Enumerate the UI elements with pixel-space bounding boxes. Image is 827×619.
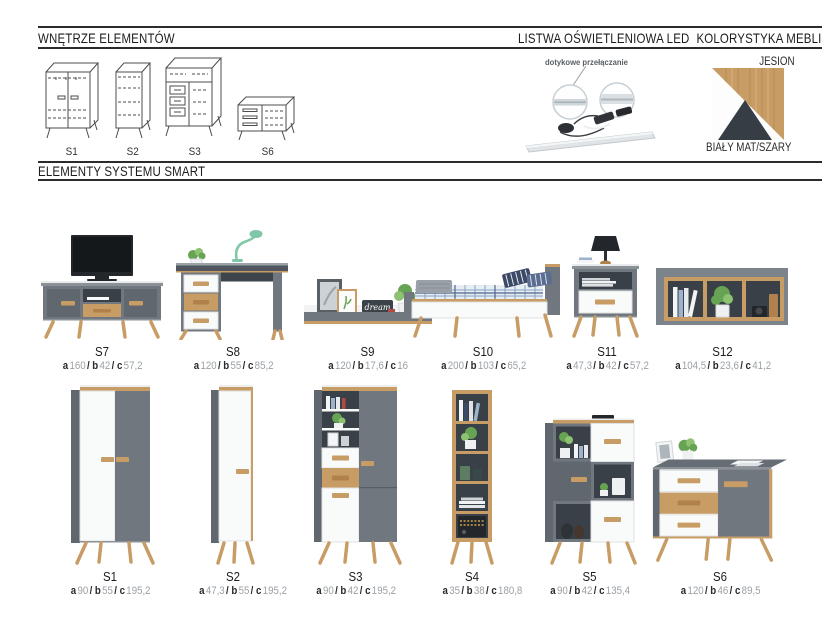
product-dimensions: a47,3/b42/c57,2 bbox=[563, 360, 651, 372]
s12-photo bbox=[650, 225, 795, 340]
section-title-interiors: WNĘTRZE ELEMENTÓW bbox=[38, 30, 175, 46]
s1-wireframe-icon bbox=[42, 58, 102, 142]
interior-label: S1 bbox=[66, 146, 78, 158]
s6-wireframe-icon bbox=[234, 93, 302, 142]
product-card-s2: S2 a47,3/b55/c195,2 bbox=[193, 388, 273, 597]
interior-drawing-s2: S2 bbox=[112, 58, 154, 160]
color-swatch bbox=[712, 68, 784, 140]
interior-drawing-s3: S3 bbox=[162, 52, 228, 160]
s2-photo bbox=[193, 388, 273, 565]
interior-drawing-s1: S1 bbox=[42, 58, 102, 160]
product-name: S5 bbox=[539, 569, 640, 584]
product-dimensions: a90/b42/c195,2 bbox=[305, 585, 406, 597]
product-name: S4 bbox=[441, 569, 503, 584]
s7-photo bbox=[37, 225, 167, 340]
product-dimensions: a200/b103/c65,2 bbox=[408, 360, 558, 372]
s1-photo bbox=[55, 388, 165, 565]
system-rule-bottom bbox=[38, 179, 822, 181]
product-dimensions: a120/b55/c85,2 bbox=[180, 360, 286, 372]
s6-photo bbox=[645, 388, 795, 565]
s3-wireframe-icon bbox=[162, 52, 228, 142]
led-strip-photo bbox=[520, 66, 672, 160]
product-card-s5: S5 a90/b42/c135,4 bbox=[532, 388, 647, 597]
s4-photo bbox=[437, 388, 507, 565]
color-label-jesion: JESION bbox=[760, 56, 795, 68]
product-card-s3: S3 a90/b42/c195,2 bbox=[298, 388, 413, 597]
interior-label: S6 bbox=[262, 146, 274, 158]
s5-cabinet-illustration bbox=[534, 415, 646, 565]
product-name: S10 bbox=[408, 344, 558, 359]
product-card-s1: S1 a90/b55/c195,2 bbox=[55, 388, 165, 597]
interior-label: S3 bbox=[189, 146, 201, 158]
s7-tv-stand-illustration bbox=[37, 235, 167, 340]
product-name: S11 bbox=[563, 344, 651, 359]
s6-sideboard-illustration bbox=[645, 431, 795, 565]
s10-bed-illustration bbox=[399, 252, 567, 340]
product-name: S6 bbox=[654, 569, 786, 584]
product-dimensions: a90/b42/c135,4 bbox=[539, 585, 640, 597]
s4-bookshelf-illustration bbox=[445, 388, 499, 565]
section-title-colors: KOLORYSTYKA MEBLI bbox=[697, 30, 822, 46]
interior-label: S2 bbox=[127, 146, 139, 158]
s1-wardrobe-illustration bbox=[56, 384, 164, 565]
s2-wireframe-icon bbox=[112, 58, 154, 142]
product-dimensions: a160/b42/c57,2 bbox=[45, 360, 159, 372]
section-title-led: LISTWA OŚWIETLENIOWA LED bbox=[518, 30, 689, 46]
product-name: S2 bbox=[198, 569, 268, 584]
product-name: S3 bbox=[305, 569, 406, 584]
dream-sign-text: dream bbox=[364, 303, 390, 312]
catalog-page: WNĘTRZE ELEMENTÓW LISTWA OŚWIETLENIOWA L… bbox=[0, 0, 827, 619]
product-name: S8 bbox=[180, 344, 286, 359]
s10-photo bbox=[398, 225, 568, 340]
header-rule bbox=[38, 47, 822, 49]
product-name: S7 bbox=[45, 344, 159, 359]
color-label-bialy-szary: BIAŁY MAT/SZARY bbox=[706, 142, 791, 154]
product-dimensions: a120/b46/c89,5 bbox=[654, 585, 786, 597]
product-dimensions: a35/b38/c180,8 bbox=[441, 585, 503, 597]
s3-bookcase-illustration bbox=[301, 384, 411, 565]
product-card-s10: S10 a200/b103/c65,2 bbox=[398, 225, 568, 372]
s11-photo bbox=[557, 225, 657, 340]
product-dimensions: a47,3/b55/c195,2 bbox=[198, 585, 268, 597]
product-card-s6: S6 a120/b46/c89,5 bbox=[645, 388, 795, 597]
product-dimensions: a90/b55/c195,2 bbox=[62, 585, 159, 597]
product-card-s7: S7 a160/b42/c57,2 bbox=[37, 225, 167, 372]
s2-wardrobe-illustration bbox=[195, 384, 271, 565]
section-title-system: ELEMENTY SYSTEMU SMART bbox=[38, 163, 205, 179]
s8-photo bbox=[173, 225, 293, 340]
s3-photo bbox=[298, 388, 413, 565]
product-card-s11: S11 a47,3/b42/c57,2 bbox=[557, 225, 657, 372]
product-card-s8: S8 a120/b55/c85,2 bbox=[173, 225, 293, 372]
s8-desk-illustration bbox=[173, 227, 293, 340]
product-card-s12: S12 a104,5/b23,6/c41,2 bbox=[650, 225, 795, 372]
product-dimensions: a104,5/b23,6/c41,2 bbox=[659, 360, 787, 372]
product-name: S1 bbox=[62, 569, 159, 584]
s12-wall-cube-illustration bbox=[653, 266, 793, 332]
s11-nightstand-illustration bbox=[564, 232, 650, 340]
s5-photo bbox=[532, 388, 647, 565]
top-rule bbox=[38, 26, 822, 28]
product-card-s4: S4 a35/b38/c180,8 bbox=[437, 388, 507, 597]
product-name: S12 bbox=[659, 344, 787, 359]
interior-drawing-s6: S6 bbox=[234, 93, 302, 160]
